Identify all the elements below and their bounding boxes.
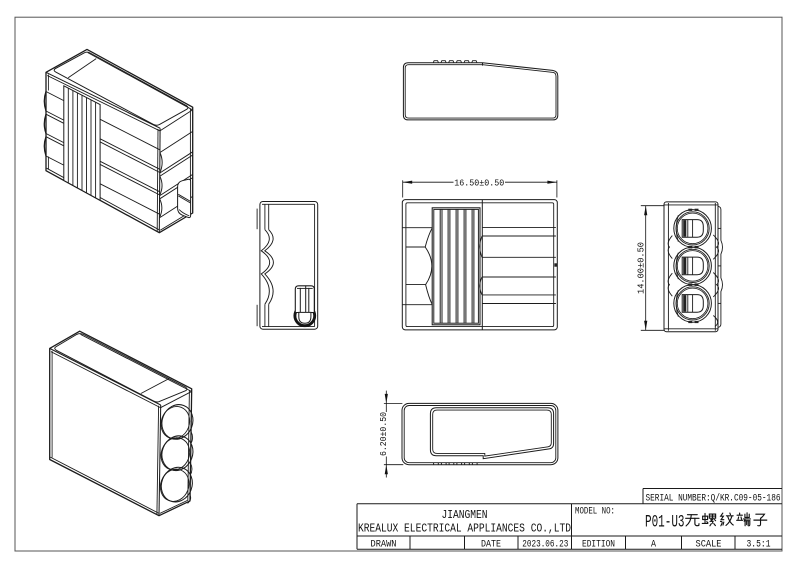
svg-text:16.50±0.50: 16.50±0.50: [454, 177, 504, 188]
svg-text:DATE: DATE: [481, 539, 501, 550]
svg-text:A: A: [651, 539, 656, 550]
svg-text:2023.06.23: 2023.06.23: [522, 539, 568, 550]
svg-text:JIANGMEN: JIANGMEN: [442, 508, 488, 522]
svg-text:14.00±0.50: 14.00±0.50: [635, 242, 646, 294]
svg-text:6.20±0.50: 6.20±0.50: [378, 412, 389, 456]
svg-text:3.5:1: 3.5:1: [747, 539, 771, 550]
svg-text:SCALE: SCALE: [696, 539, 722, 550]
svg-text:EDITION: EDITION: [582, 539, 615, 550]
svg-text:MODEL NO:: MODEL NO:: [575, 506, 615, 517]
svg-text:P01-U3: P01-U3: [645, 513, 685, 533]
svg-text:DRAWN: DRAWN: [371, 539, 397, 550]
svg-text:SERIAL NUMBER:Q/KR.C09-05-186: SERIAL NUMBER:Q/KR.C09-05-186: [646, 492, 781, 504]
svg-text:KREALUX ELECTRICAL APPLIANCES: KREALUX ELECTRICAL APPLIANCES CO.,LTD: [358, 522, 571, 536]
